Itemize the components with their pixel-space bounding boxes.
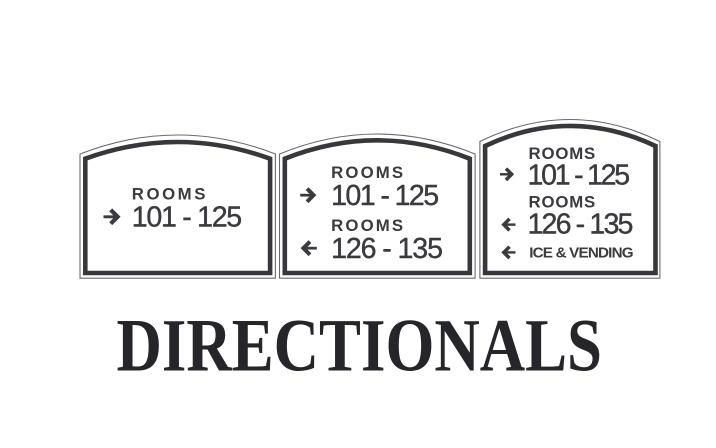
svg-text:DIRECTIONALS: DIRECTIONALS	[117, 305, 603, 388]
svg-text:101 - 125: 101 - 125	[331, 180, 439, 212]
svg-text:ROOMS: ROOMS	[132, 184, 206, 203]
svg-text:101 - 125: 101 - 125	[132, 202, 242, 234]
svg-text:101 - 125: 101 - 125	[528, 160, 631, 192]
svg-text:126 - 135: 126 - 135	[528, 209, 634, 241]
svg-text:ICE & VENDING: ICE & VENDING	[529, 245, 633, 262]
svg-text:126 - 135: 126 - 135	[331, 233, 443, 265]
